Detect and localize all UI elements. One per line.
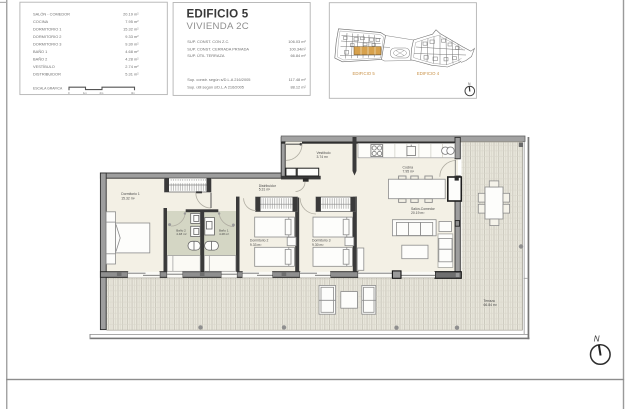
svg-text:4.68 m²: 4.68 m²: [125, 49, 139, 54]
svg-text:9.30 m²: 9.30 m²: [312, 243, 324, 247]
svg-text:2.74 m²: 2.74 m²: [125, 64, 139, 69]
svg-text:20.19 m²: 20.19 m²: [411, 211, 425, 215]
svg-text:100.34m²: 100.34m²: [289, 46, 306, 51]
svg-text:VESTÍBULO: VESTÍBULO: [33, 64, 55, 69]
svg-text:ESCALA GRAFICA: ESCALA GRAFICA: [33, 86, 63, 90]
svg-text:5.31 m²: 5.31 m²: [125, 71, 139, 76]
svg-text:SUP. CONST. CERRADA PRIVADA: SUP. CONST. CERRADA PRIVADA: [187, 46, 249, 51]
svg-text:SUP. ÚTIL TERRAZA: SUP. ÚTIL TERRAZA: [187, 53, 225, 58]
svg-text:4.48 m²: 4.48 m²: [176, 232, 186, 236]
svg-text:3.74 m²: 3.74 m²: [317, 155, 329, 159]
svg-text:117.48 m²: 117.48 m²: [289, 77, 307, 82]
svg-text:SUP. CONST. CON Z.C.: SUP. CONST. CON Z.C.: [187, 39, 229, 44]
svg-text:7.95 m²: 7.95 m²: [403, 170, 415, 174]
svg-text:DORMITORIO 1: DORMITORIO 1: [33, 26, 61, 31]
svg-text:7.95 m²: 7.95 m²: [125, 19, 139, 24]
svg-text:106.03 m²: 106.03 m²: [288, 39, 306, 44]
svg-text:66.84 m²: 66.84 m²: [290, 53, 306, 58]
svg-text:5.31 m²: 5.31 m²: [259, 188, 271, 192]
svg-text:4.28 m²: 4.28 m²: [219, 232, 229, 236]
svg-text:EDIFICIO 5: EDIFICIO 5: [187, 8, 249, 21]
svg-text:BAÑO 1: BAÑO 1: [33, 49, 47, 54]
svg-text:9.33 m²: 9.33 m²: [125, 34, 139, 39]
svg-text:EDIFICIO 4: EDIFICIO 4: [417, 71, 440, 76]
svg-text:Sup. constr. según s/D.L.A 216: Sup. constr. según s/D.L.A 216/2005: [187, 77, 250, 82]
svg-text:DORMITORIO 2: DORMITORIO 2: [33, 34, 61, 39]
svg-text:88.12 m²: 88.12 m²: [290, 85, 306, 90]
svg-text:3m: 3m: [131, 91, 136, 95]
svg-text:COCINA: COCINA: [33, 19, 49, 24]
svg-text:SALÓN - COMEDOR: SALÓN - COMEDOR: [33, 11, 70, 16]
svg-text:9.30 m²: 9.30 m²: [125, 41, 139, 46]
svg-text:66.84 m²: 66.84 m²: [484, 303, 498, 307]
svg-text:Sup. útil según s/D.L.A 216/20: Sup. útil según s/D.L.A 216/2005: [187, 85, 244, 90]
svg-text:BAÑO 2: BAÑO 2: [33, 56, 47, 61]
svg-text:15.32 m²: 15.32 m²: [121, 196, 135, 200]
svg-text:1m: 1m: [83, 91, 88, 95]
svg-text:EDIFICIO 5: EDIFICIO 5: [353, 71, 376, 76]
svg-text:20.19 m²: 20.19 m²: [123, 11, 139, 16]
svg-text:N: N: [594, 335, 600, 344]
svg-text:4.28 m²: 4.28 m²: [125, 56, 139, 61]
svg-text:15.32 m²: 15.32 m²: [123, 26, 139, 31]
svg-text:9.33 m²: 9.33 m²: [250, 243, 262, 247]
svg-text:DISTRIBUIDOR: DISTRIBUIDOR: [33, 71, 61, 76]
svg-text:2m: 2m: [100, 91, 105, 95]
svg-text:VIVIENDA 2C: VIVIENDA 2C: [187, 21, 249, 32]
svg-text:DORMITORIO 3: DORMITORIO 3: [33, 41, 61, 46]
